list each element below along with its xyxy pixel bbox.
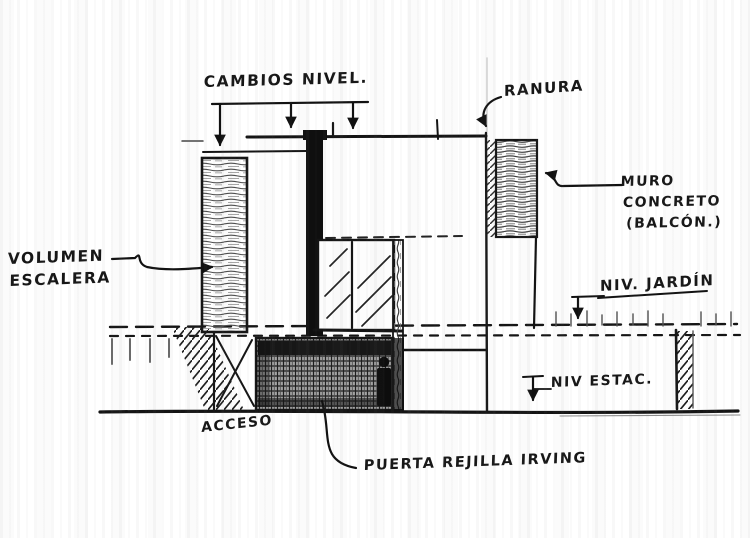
retaining-pier: [676, 330, 693, 409]
roof-level-tick: [437, 120, 438, 139]
ranura-slot: [487, 140, 496, 237]
label-muro-line1: MURO: [620, 170, 724, 193]
label-volumen-line2: ESCALERA: [9, 266, 111, 292]
jardin-leader: [572, 296, 604, 297]
concrete-balcony-wall: [496, 140, 537, 237]
label-niv-estac: NIV ESTAC.: [551, 372, 653, 390]
ranura-edge-line: [486, 133, 487, 411]
muro-leader: [546, 173, 622, 186]
glazing-box: [314, 240, 402, 331]
label-muro-line3: (BALCÓN.): [626, 212, 723, 235]
label-muro-line2: CONCRETO: [623, 191, 724, 214]
stair-volume: [202, 158, 247, 332]
label-volumen-escalera: VOLUMEN ESCALERA: [7, 244, 111, 292]
sketch-canvas: CAMBIOS NIVEL. RANURA MURO CONCRETO (BAL…: [0, 0, 750, 538]
garden-ticks-left: [112, 339, 169, 364]
access-door: [256, 338, 393, 410]
volumen-leader: [112, 255, 212, 269]
balcony-level-dashes: [326, 236, 462, 238]
ranura-and-balcony-wall: [486, 133, 537, 411]
parking-level-line: [100, 411, 738, 412]
label-muro-concreto: MURO CONCRETO (BALCÓN.): [619, 170, 724, 235]
ranura-leader: [483, 97, 501, 126]
